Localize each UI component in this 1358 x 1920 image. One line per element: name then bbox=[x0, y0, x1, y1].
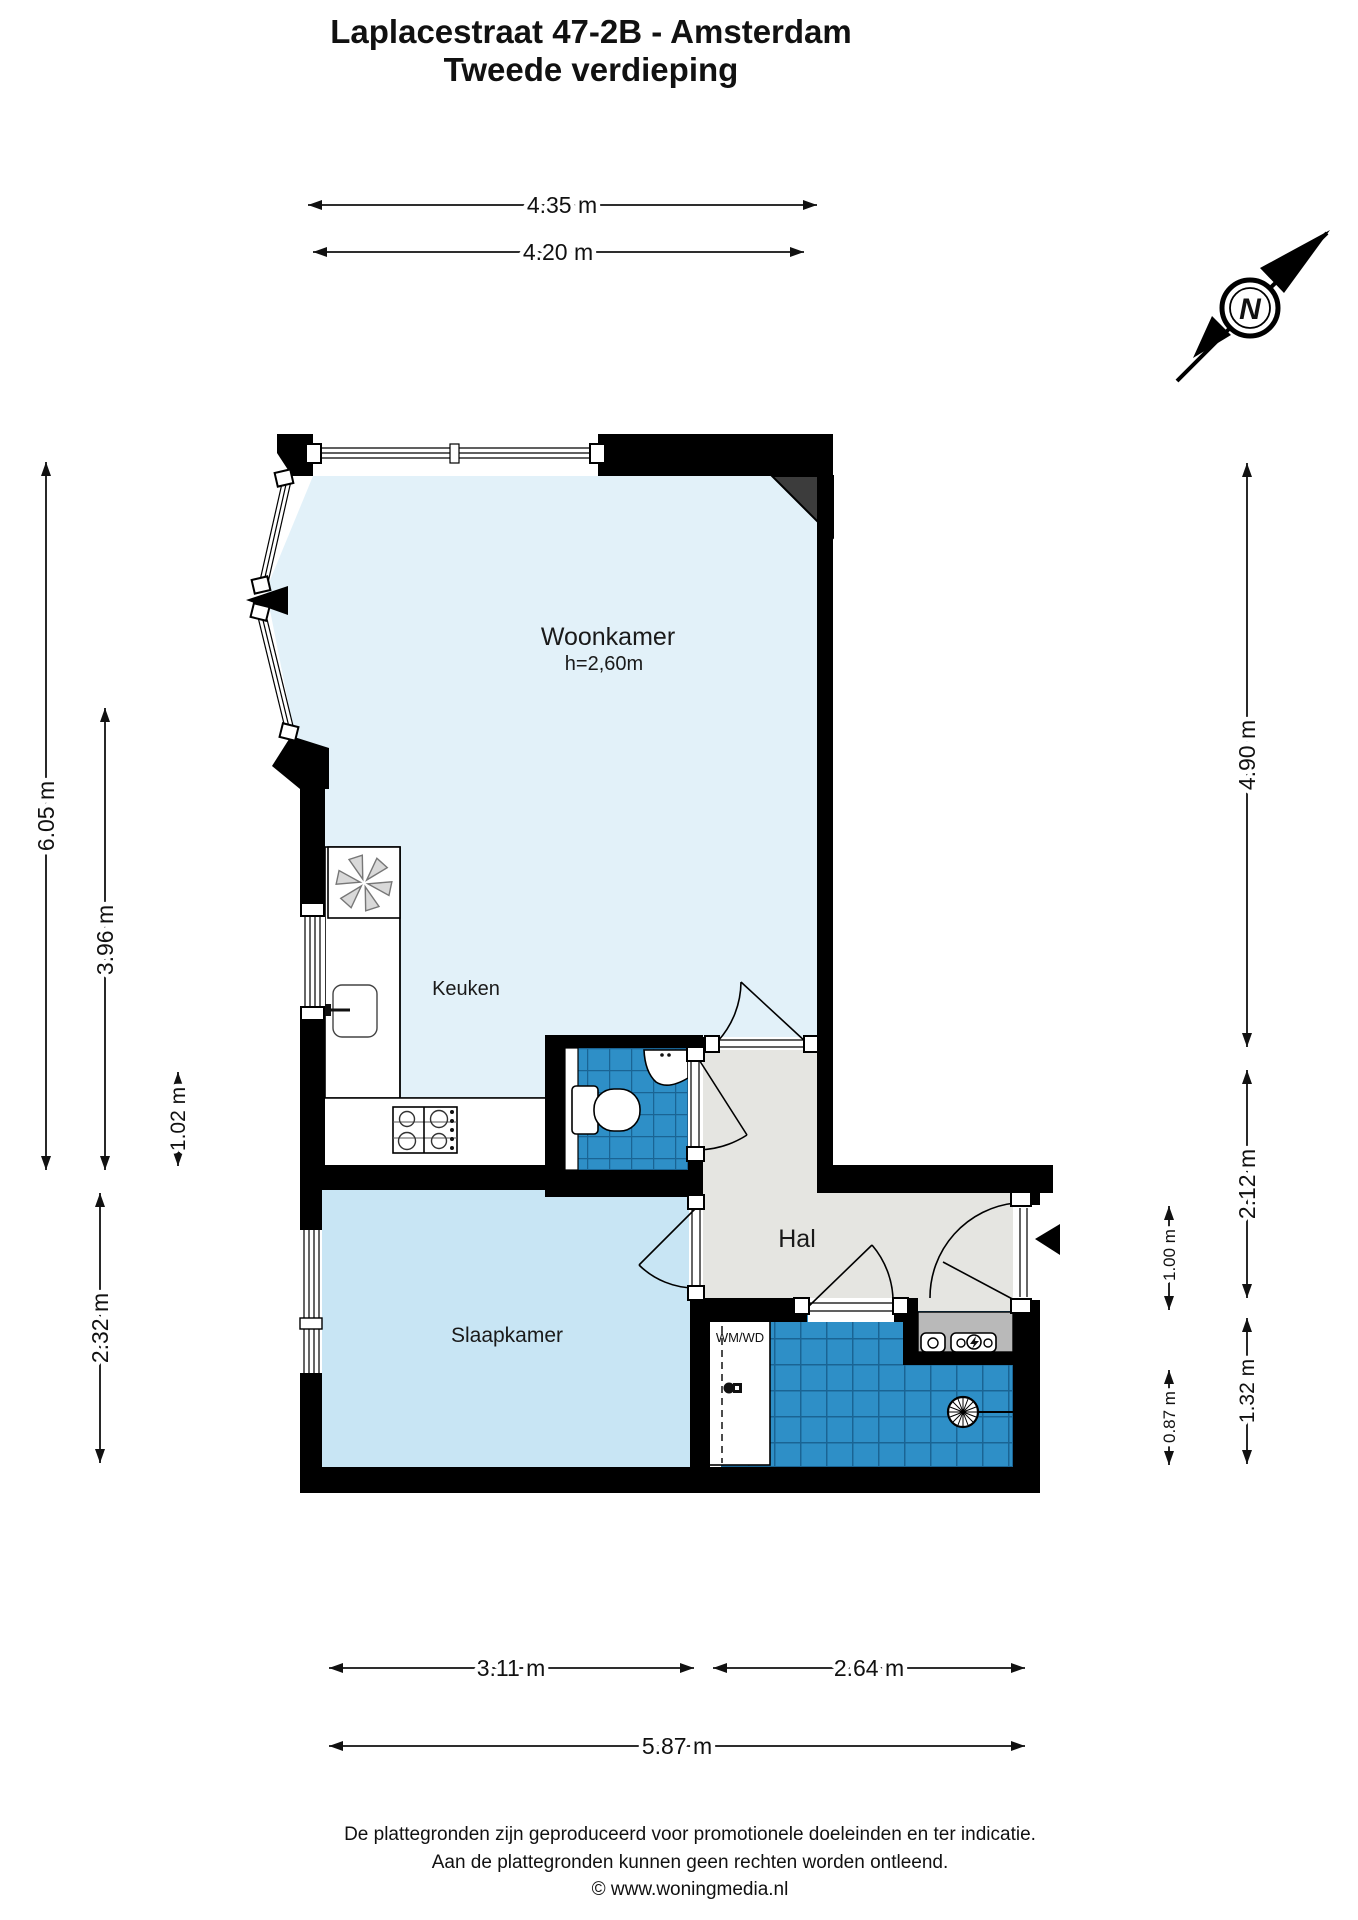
footer-line2: Aan de plattegronden kunnen geen rechten… bbox=[432, 1852, 949, 1873]
dim-right-niche: 0.87 m bbox=[1160, 1391, 1179, 1443]
window-top bbox=[306, 434, 605, 476]
dim-right-entrance: 1.00 m bbox=[1160, 1229, 1179, 1281]
dim-left-bedroom: 2.32 m bbox=[87, 1293, 113, 1363]
dim-top-outer: 4.35 m bbox=[527, 192, 597, 218]
dim-top-inner: 4.20 m bbox=[523, 239, 593, 265]
room-label-slaapkamer: Slaapkamer bbox=[451, 1324, 563, 1347]
washer-label: WM/WD bbox=[716, 1330, 764, 1345]
room-label-keuken: Keuken bbox=[432, 978, 500, 1000]
dim-left-kitchen: 3.96 m bbox=[92, 905, 118, 975]
room-label-woonkamer: Woonkamer bbox=[541, 623, 675, 651]
compass-north-label: N bbox=[1239, 293, 1262, 326]
plan-title: Laplacestraat 47-2B - Amsterdam bbox=[330, 13, 852, 50]
dim-bottom-bathroom: 2.64 m bbox=[834, 1655, 904, 1681]
dim-left-small: 1.02 m bbox=[167, 1087, 190, 1151]
dim-right-hal: 2.12 m bbox=[1234, 1149, 1260, 1219]
toilet-bowl bbox=[594, 1089, 640, 1131]
plan-subtitle: Tweede verdieping bbox=[444, 51, 739, 88]
dim-right-livingroom: 4.90 m bbox=[1234, 720, 1260, 790]
stove bbox=[393, 1107, 457, 1153]
dim-left-outer: 6.05 m bbox=[33, 781, 59, 851]
vanity-basin bbox=[921, 1333, 945, 1352]
footer-line1: De plattegronden zijn geproduceerd voor … bbox=[344, 1824, 1036, 1845]
footer-line3: © www.woningmedia.nl bbox=[592, 1879, 789, 1900]
room-height-woonkamer: h=2,60m bbox=[565, 653, 643, 675]
floorplan-canvas: N Laplacestraat 47-2B - Amsterdam Tweede… bbox=[0, 0, 1358, 1920]
tap-icon bbox=[724, 1383, 743, 1394]
dim-right-bathroom: 1.32 m bbox=[1236, 1359, 1259, 1423]
window-kitchen bbox=[300, 903, 325, 1020]
room-label-hal: Hal bbox=[778, 1225, 816, 1253]
dim-bottom-bedroom: 3.11 m bbox=[477, 1655, 546, 1681]
window-bedroom bbox=[300, 1230, 322, 1373]
dim-bottom-total: 5.87 m bbox=[642, 1733, 712, 1759]
